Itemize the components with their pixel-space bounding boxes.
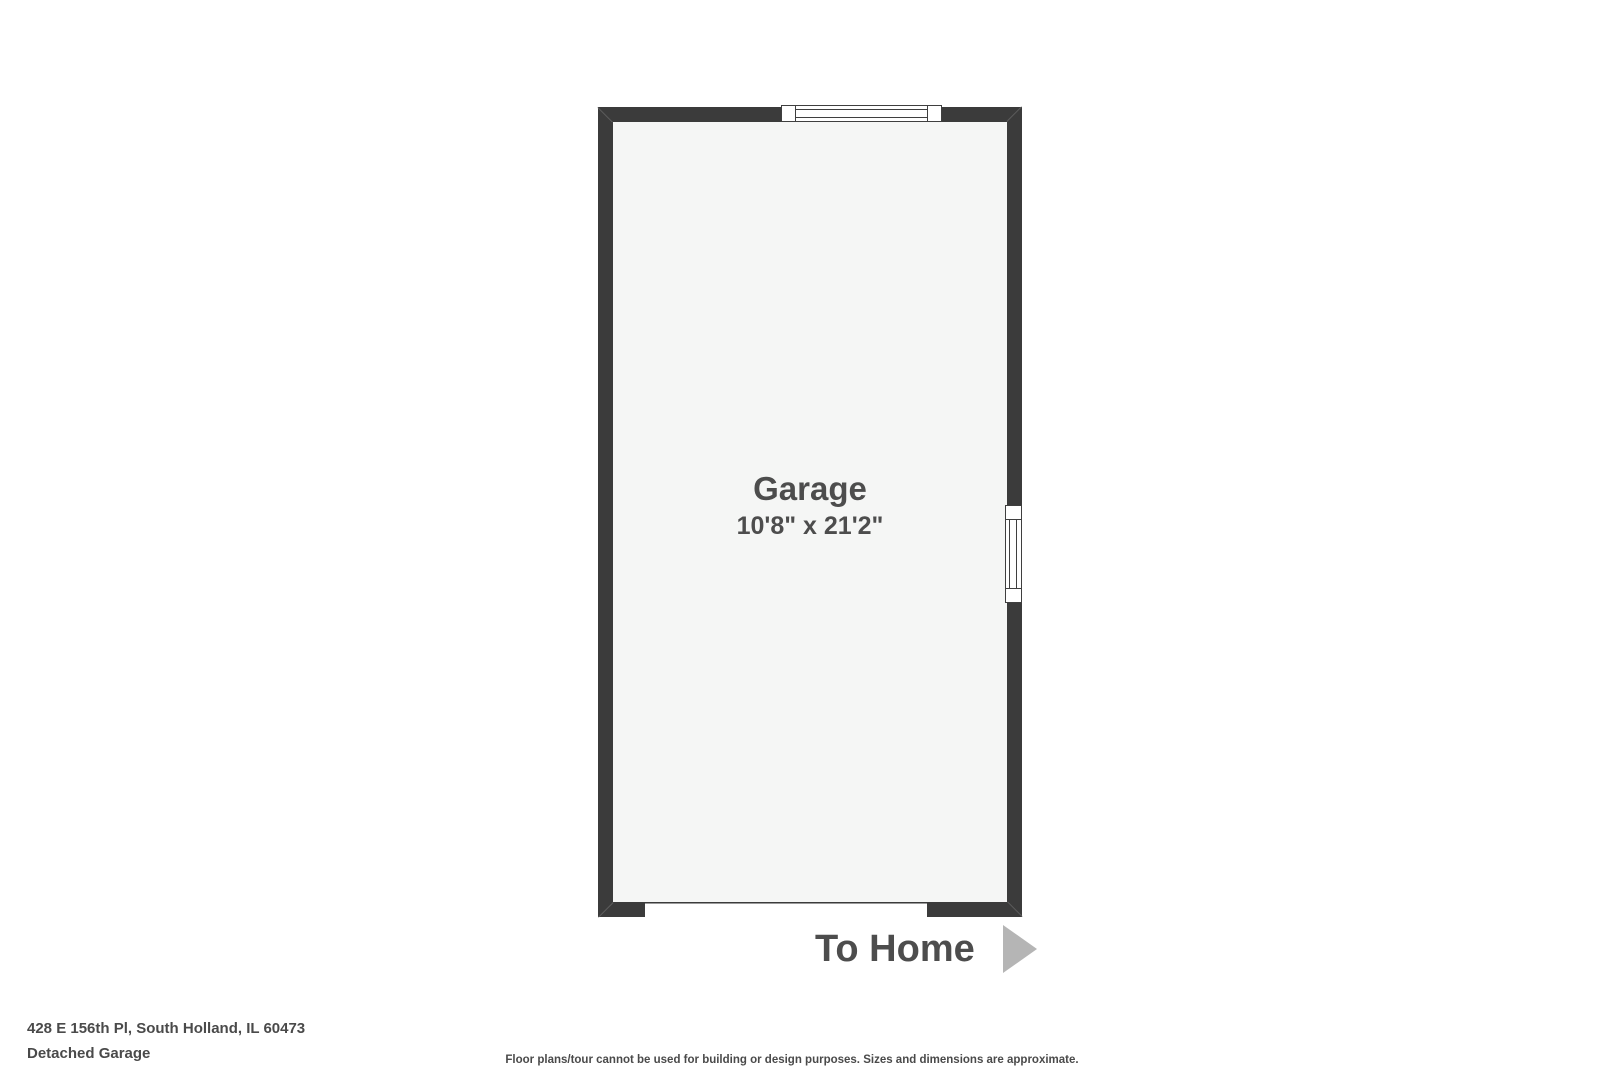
window-end-cap <box>927 106 941 121</box>
to-home-arrow-icon <box>1003 925 1037 973</box>
room-label: Garage 10'8" x 21'2" <box>613 470 1007 541</box>
window-pane-line <box>1016 520 1017 588</box>
window-pane-line <box>796 109 927 110</box>
window-end-cap <box>1006 506 1021 520</box>
property-address: 428 E 156th Pl, South Holland, IL 60473 <box>27 1020 305 1037</box>
disclaimer-text: Floor plans/tour cannot be used for buil… <box>392 1054 1192 1067</box>
window-top-icon <box>781 105 942 122</box>
window-pane-line <box>1009 520 1010 588</box>
room-dimensions: 10'8" x 21'2" <box>613 511 1007 541</box>
window-end-cap <box>782 106 796 121</box>
wall-miter-seam <box>598 902 614 918</box>
wall-miter-seam <box>1007 901 1023 917</box>
window-end-cap <box>1006 588 1021 602</box>
to-home-label: To Home <box>815 924 975 974</box>
plan-title: Detached Garage <box>27 1045 150 1062</box>
floorplan-page: Garage 10'8" x 21'2" To Home 428 E 156th… <box>0 0 1620 1080</box>
window-right-icon <box>1005 505 1022 603</box>
room-name: Garage <box>613 470 1007 508</box>
to-home-nav[interactable]: To Home <box>815 924 1037 974</box>
wall-miter-seam <box>1006 106 1022 122</box>
wall-miter-seam <box>597 107 613 123</box>
garage-door-opening <box>645 903 927 917</box>
window-pane-line <box>796 117 927 118</box>
